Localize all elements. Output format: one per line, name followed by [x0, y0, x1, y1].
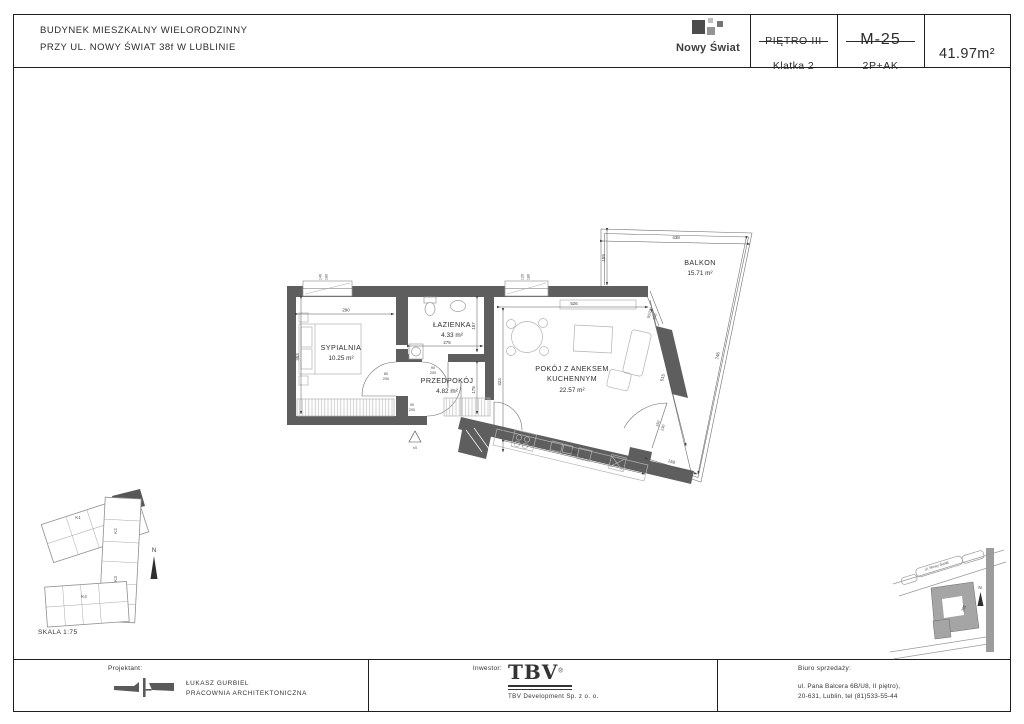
sales-address-line2: 20-631, Lublin, tel (81)533-55-44: [798, 692, 900, 702]
bath-door-height-label: 200: [430, 371, 436, 375]
scale-label: SKALA 1:75: [38, 629, 78, 636]
bedroom-door-height-label: 200: [383, 377, 389, 381]
map-north-arrow-icon: [978, 592, 984, 606]
chair: [507, 347, 516, 356]
bedroom-door-width-label: 80: [384, 372, 388, 376]
hall-area: 4.82 m²: [436, 388, 458, 395]
bath-door-width-label: 90: [431, 366, 435, 370]
chair: [507, 320, 516, 329]
site-north-label: N: [152, 548, 156, 554]
living-label-line1: POKÓJ Z ANEKSEM: [535, 364, 609, 373]
designer-info: ŁUKASZ GURBIEL PRACOWNIA ARCHITEKTONICZN…: [186, 679, 307, 699]
plan-sheet: BUDYNEK MIESZKALNY WIELORODZINNY PRZY UL…: [0, 0, 1024, 724]
dim-bathroom-width: 275: [443, 340, 451, 345]
investor-logo-block: TBV® TBV Development Sp. z o. o.: [508, 663, 628, 700]
pillow: [301, 349, 312, 369]
living-label-line2: KUCHENNYM: [547, 374, 597, 383]
bedroom-door-arc: [362, 362, 396, 396]
apartment-walls: [287, 286, 694, 484]
designer-label: Projektant:: [108, 665, 142, 672]
sales-office-label: Biuro sprzedaży:: [798, 665, 851, 672]
balcony-door-height-label: 230: [660, 424, 666, 431]
chair: [540, 347, 549, 356]
dim-bathroom-height: 157: [471, 322, 476, 330]
entrance-marker: ±0: [409, 431, 421, 450]
nightstand: [299, 313, 308, 322]
toilet: [425, 303, 435, 316]
dim-balcony-bottom: 159: [667, 458, 676, 465]
registered-mark-icon: ®: [558, 669, 562, 675]
pillow: [301, 327, 312, 347]
floorplan-svg: ±0 290 353 275 157 175 526 423 515 434 4…: [0, 0, 1024, 724]
level-marker-text: ±0: [413, 446, 417, 450]
investor-label: Inwestor:: [440, 665, 502, 672]
site-plan: K1 K2 K3 K4 N SKALA 1:75: [38, 489, 158, 636]
sink: [451, 301, 466, 312]
tbv-logo-bar: [508, 689, 572, 690]
balcony-corner-sill-label: 190: [652, 313, 658, 320]
dim-balcony-width: 438: [672, 235, 680, 240]
designer-logo: [114, 677, 176, 701]
dining-table: [512, 322, 543, 353]
dim-balcony-right: 746: [714, 351, 721, 360]
nightstand: [299, 376, 308, 385]
bathroom-label: ŁAZIENKA: [433, 320, 471, 329]
dim-hall-height: 175: [471, 386, 476, 394]
dim-bedroom-height: 353: [295, 353, 300, 361]
entry-door-width-label: 90: [410, 403, 414, 407]
site-north-arrow-icon: [151, 556, 158, 579]
stair-k4-label: K4: [81, 594, 87, 599]
map-north-label: N: [978, 585, 981, 590]
dim-balcony-left: 159: [601, 254, 606, 262]
living-window: [505, 281, 548, 296]
balcony-area: 15.71 m²: [687, 270, 712, 277]
chair: [539, 319, 548, 328]
sales-address-line1: ul. Pana Balcera 6B/U8, II piętro),: [798, 682, 900, 692]
designer-name: ŁUKASZ GURBIEL: [186, 679, 307, 689]
stair-k3-label: K3: [113, 576, 118, 582]
location-map: ul. Nowy Świat 38f N: [890, 548, 1006, 659]
window1-width-label: 140: [319, 274, 323, 280]
sofa: [622, 329, 651, 376]
designer-firm: PRACOWNIA ARCHITEKTONICZNA: [186, 689, 307, 699]
window2-height-label: 180: [527, 274, 531, 280]
tbv-logo: TBV: [508, 660, 558, 684]
window1-height-label: 180: [325, 274, 329, 280]
entry-door-height-label: 200: [409, 408, 415, 412]
wardrobe: [297, 399, 394, 416]
entrance-triangle-icon: [409, 431, 421, 442]
bedroom-label: SYPIALNIA: [321, 343, 362, 352]
armchair: [606, 369, 631, 391]
sales-office-address: ul. Pana Balcera 6B/U8, II piętro), 20-6…: [798, 682, 900, 702]
bedroom-area: 10.25 m²: [328, 355, 353, 362]
dim-bedroom-width: 290: [342, 308, 350, 313]
dim-living-width: 526: [570, 301, 578, 306]
toilet-tank: [424, 297, 436, 303]
window2-width-label: 120: [521, 274, 525, 280]
hall-wardrobe: [444, 398, 490, 416]
stair-k1-label: K1: [75, 515, 81, 520]
map-road-band: [986, 548, 994, 652]
bedroom-furniture: [297, 313, 394, 416]
balcony-label: BALKON: [684, 258, 716, 267]
hall-label: PRZEDPOKÓJ: [421, 376, 474, 385]
living-area: 22.57 m²: [559, 387, 584, 394]
dim-living-height: 423: [497, 378, 502, 386]
stair-k2-label: K2: [113, 528, 118, 534]
bathroom-area: 4.33 m²: [441, 332, 463, 339]
dim-living-right: 515: [659, 373, 666, 382]
balcony-door-width-label: 150: [655, 420, 661, 427]
hall-furniture: [444, 398, 490, 416]
bedroom-window: [303, 281, 352, 296]
rug: [573, 325, 612, 353]
tbv-logo-bar: [508, 685, 572, 687]
investor-name: TBV Development Sp. z o. o.: [508, 693, 628, 700]
